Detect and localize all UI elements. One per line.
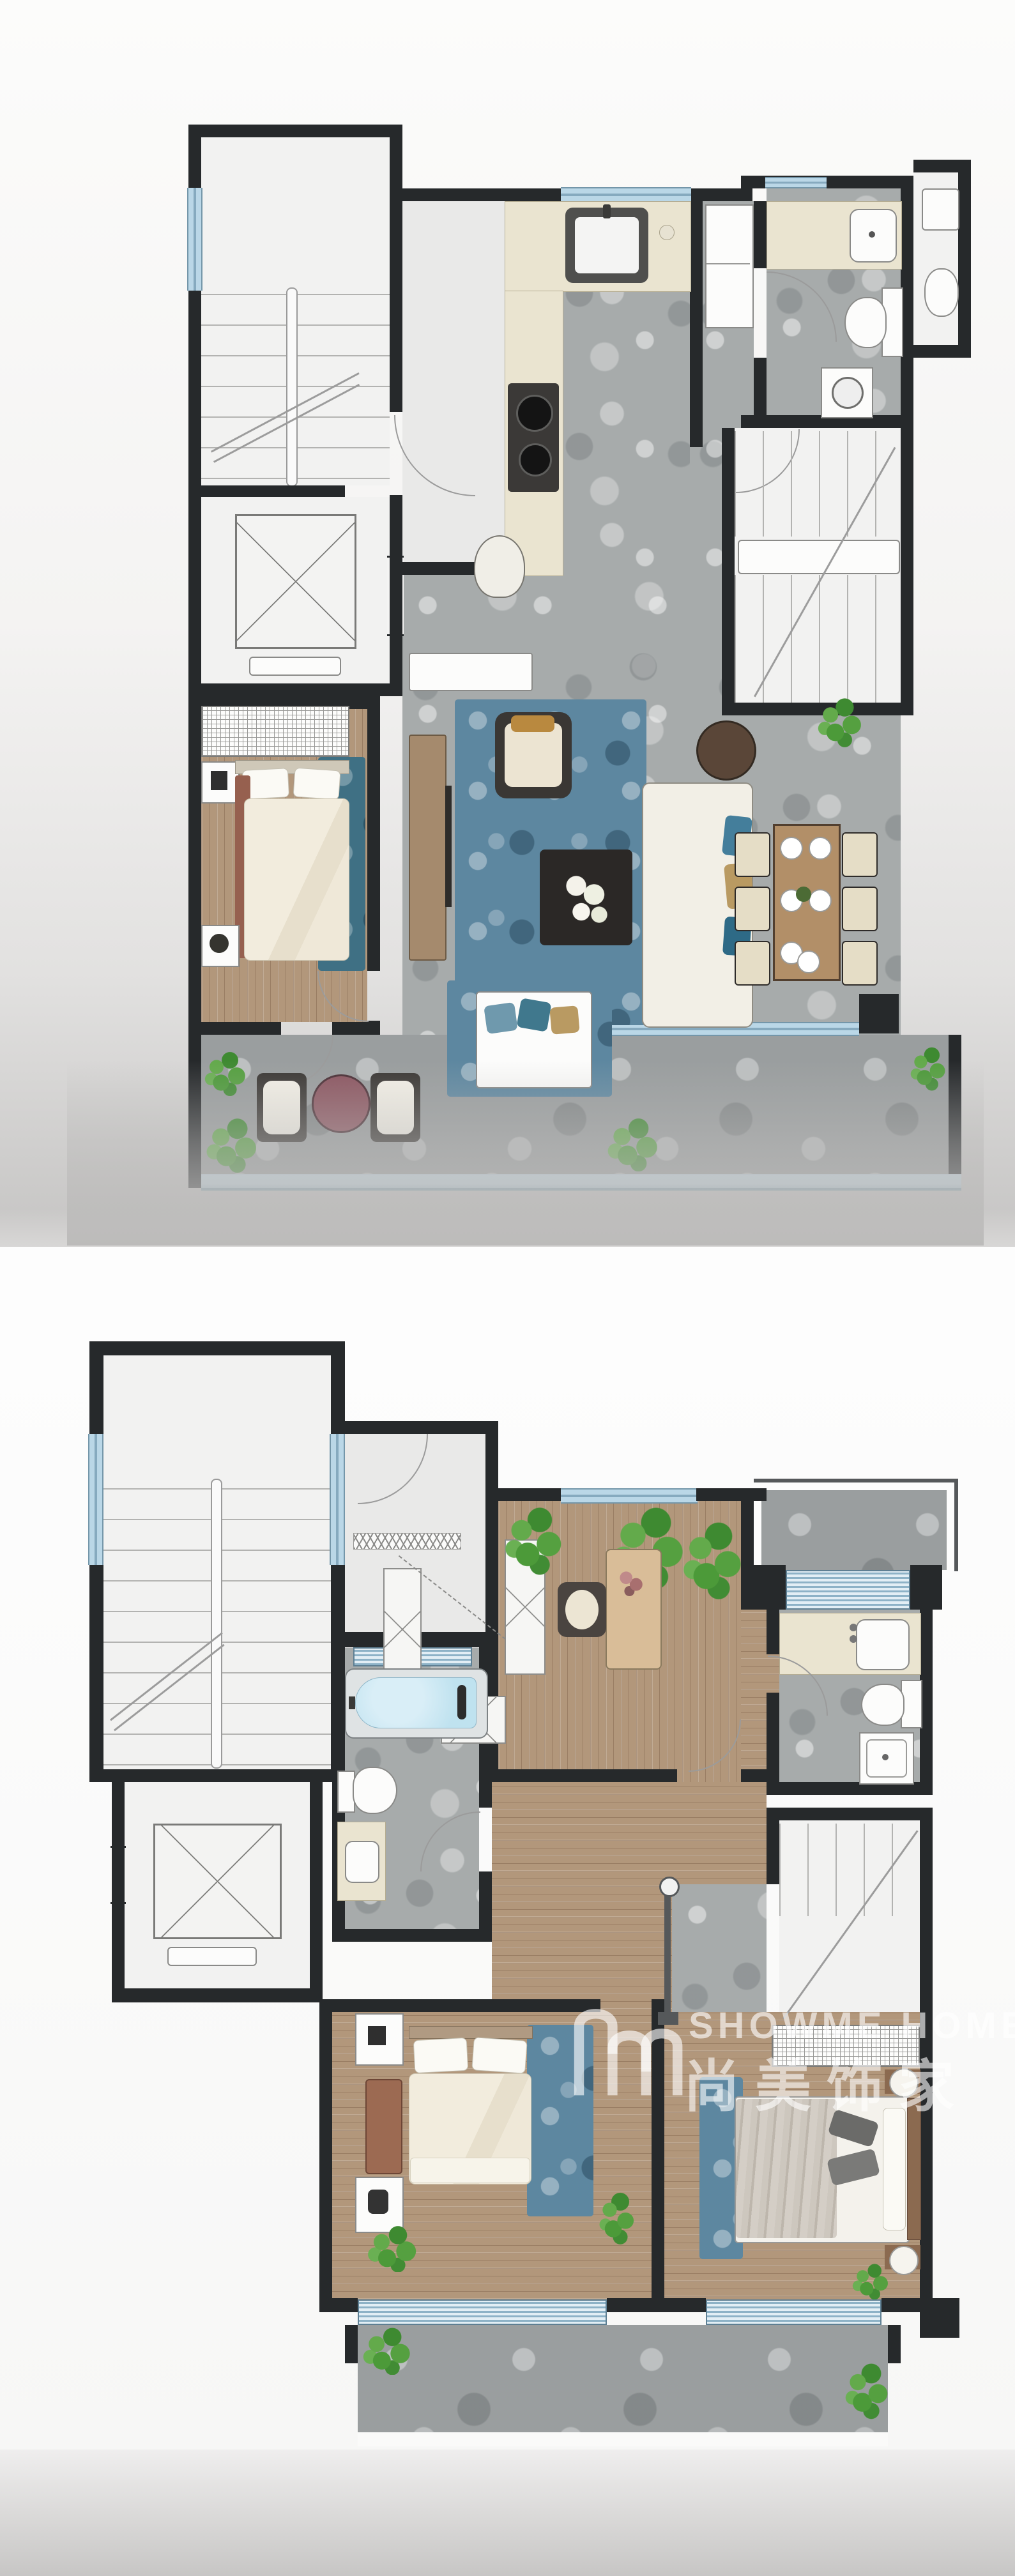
bathroom2-faucet-dot-1 — [850, 1624, 857, 1631]
wall-segment — [188, 709, 201, 1022]
wall-segment — [89, 1565, 103, 1782]
wall-segment — [390, 495, 402, 696]
coffee-table-flowers — [561, 869, 612, 926]
wall-segment — [390, 137, 402, 412]
nightstand-lamp — [211, 771, 227, 790]
wall-segment — [754, 201, 767, 268]
shower-drain — [882, 1754, 889, 1760]
rear-terrace-apron — [358, 2432, 888, 2446]
stair-center-rail — [286, 287, 298, 487]
master-bed-pillow-2 — [471, 2037, 527, 2074]
showme-home-logo-icon — [567, 1997, 685, 2105]
wall-segment — [345, 2325, 358, 2363]
plate-6 — [797, 950, 820, 973]
wall-segment — [767, 1610, 779, 1654]
wall-segment — [741, 1769, 767, 1782]
master-desk-chair — [368, 2190, 388, 2214]
dining-chair-l3 — [735, 941, 770, 986]
round-side-table — [696, 720, 756, 781]
round-nightstand-2 — [889, 2246, 919, 2275]
bed-duvet — [244, 798, 349, 961]
wall-segment — [188, 485, 345, 497]
wall-segment — [607, 2298, 706, 2312]
wall-segment — [89, 1355, 103, 1434]
master-plant-1 — [365, 2226, 420, 2272]
dining-chair-r2 — [842, 887, 878, 931]
wall-segment — [332, 1022, 380, 1035]
internal-stair-upper-flight — [735, 431, 901, 537]
wall-segment — [767, 1820, 779, 1884]
wall-segment — [310, 1782, 323, 2002]
bedside-bench — [365, 2079, 402, 2174]
study-desk-flowers — [614, 1566, 648, 1599]
master-bed-pillow-1 — [413, 2038, 469, 2073]
stairwell2-window-left — [88, 1434, 103, 1565]
elevator-shaft-2 — [153, 1824, 282, 1939]
stair2-center-rail — [211, 1479, 222, 1769]
structural-pillar-2 — [920, 2298, 959, 2338]
wall-segment — [89, 1769, 345, 1782]
wall-segment — [188, 683, 402, 696]
toilet3-bowl — [353, 1767, 397, 1814]
stair-landing-stone — [672, 1884, 767, 2023]
wall-segment — [881, 2298, 920, 2312]
wall-segment — [913, 345, 971, 358]
wall-segment — [754, 1565, 786, 1610]
kitchen-faucet — [603, 204, 611, 218]
master-basin — [345, 1841, 379, 1883]
wall-segment — [920, 1808, 933, 2025]
rear-terrace-plant-2 — [844, 2362, 889, 2420]
wall-segment — [367, 696, 380, 971]
wall-segment — [901, 176, 913, 715]
dining-chair-r1 — [842, 832, 878, 877]
rear-terrace-floor — [358, 2325, 888, 2434]
nightstand-plant — [210, 934, 229, 953]
shape — [613, 2036, 646, 2096]
wall-segment — [188, 1022, 281, 1035]
floor-plan-listing-image: SHOWME HOME 尚美饰家 — [0, 0, 1015, 2576]
shape — [579, 2014, 613, 2096]
dining-chair-l1 — [735, 832, 770, 877]
wall-segment — [331, 1565, 345, 1782]
wall-segment — [319, 2298, 358, 2312]
wall-segment — [722, 428, 735, 715]
wall-segment — [690, 201, 703, 447]
cooktop-burner-2 — [519, 443, 552, 476]
wall-segment — [767, 1808, 933, 1820]
wall-segment — [910, 1565, 942, 1610]
bathroom-window — [765, 177, 827, 188]
roof-terrace-frame-right — [954, 1479, 958, 1571]
study-plant-1 — [503, 1506, 564, 1575]
background-bottom-gradient — [0, 2450, 1015, 2576]
tv-console — [409, 735, 446, 961]
master-bedroom-louver-window — [358, 2299, 607, 2325]
study-chair-cushion — [565, 1590, 599, 1629]
desk-chair — [474, 535, 525, 598]
study-window — [561, 1488, 698, 1504]
wall-segment — [188, 137, 201, 188]
wall-segment — [888, 2325, 901, 2363]
stairwell2-window-right — [330, 1434, 345, 1565]
wall-segment — [112, 1782, 125, 2002]
bathroom-basin-drain — [869, 231, 875, 238]
bathroom2-basin — [856, 1619, 910, 1670]
wall-segment — [754, 358, 767, 422]
entry-hall-floor — [402, 201, 505, 575]
daybed-cushion-1 — [484, 1002, 518, 1034]
background-gap-band — [0, 1247, 1015, 1346]
powder-toilet — [924, 268, 959, 317]
study-plant-3 — [682, 1520, 743, 1600]
wall-segment — [89, 1341, 345, 1355]
powder-vanity — [922, 188, 959, 231]
dining-plant — [816, 697, 864, 747]
bathroom2-louver-window — [786, 1570, 910, 1610]
wall-segment — [188, 125, 402, 137]
roof-terrace-frame-top — [754, 1479, 958, 1482]
stairwell-window — [187, 188, 202, 291]
master-nightstand-lamp — [368, 2026, 386, 2045]
washing-machine-drum — [832, 377, 864, 409]
master-bed-headboard — [409, 2026, 533, 2039]
wall-segment — [345, 1421, 441, 1434]
dining-chair-r3 — [842, 941, 878, 986]
railing-newel-ball — [659, 1877, 680, 1897]
tv-panel — [445, 786, 452, 907]
bed-pillow-2 — [293, 768, 340, 800]
armchair-cushion — [505, 723, 562, 787]
watermark-latin-text: SHOWME HOME — [689, 2004, 1015, 2047]
second-bed-back-pillow — [883, 2108, 906, 2230]
wall-segment — [485, 1769, 677, 1782]
dining-chair-l2 — [735, 887, 770, 931]
shape — [579, 2014, 678, 2096]
refrigerator-divider — [706, 263, 750, 264]
bathtub-grab-bar — [457, 1685, 466, 1719]
daybed-cushion-3 — [549, 1005, 579, 1035]
bathroom2-faucet-dot-2 — [850, 1635, 857, 1643]
wall-segment — [741, 1488, 754, 1610]
kitchen-jar — [659, 225, 675, 240]
wardrobe — [201, 706, 349, 757]
wardrobe-section-hatch — [353, 1533, 461, 1550]
console-table — [409, 653, 533, 691]
bathtub-faucet — [349, 1696, 355, 1709]
internal-stair-landing — [738, 540, 900, 574]
wall-segment — [691, 188, 752, 201]
master-plant-2 — [599, 2191, 634, 2245]
plate-2 — [809, 837, 832, 860]
master-bed-sheet-fold — [410, 2158, 530, 2183]
second-bedroom-louver-window — [706, 2299, 881, 2325]
internal-stair-lower-flight — [735, 575, 901, 703]
wall-segment — [331, 1355, 345, 1434]
watermark-chinese-text: 尚美饰家 — [683, 2041, 970, 2123]
plate-4 — [809, 889, 832, 912]
armchair-pillow — [511, 715, 554, 732]
toilet2-bowl — [861, 1684, 904, 1726]
kitchen-sink-basin — [575, 217, 639, 273]
upper-plan-shadow-apron — [67, 1060, 984, 1246]
wall-segment — [319, 2012, 332, 2299]
elevator-indicator — [249, 657, 341, 676]
wall-segment — [112, 1988, 323, 2002]
structural-pillar — [859, 994, 899, 1033]
roof-terrace-floor — [761, 1490, 947, 1570]
second-bedroom-plant — [851, 2264, 890, 2299]
kitchen-window — [561, 187, 691, 202]
refrigerator — [705, 204, 754, 328]
toilet-bowl — [844, 297, 887, 348]
wall-segment — [402, 188, 562, 201]
dining-centerpiece — [796, 887, 811, 902]
rear-terrace-plant-1 — [361, 2328, 413, 2375]
elevator-shaft — [235, 514, 356, 649]
plate-1 — [780, 837, 803, 860]
cooktop-burner-1 — [516, 395, 553, 432]
staircase2-treads — [779, 1824, 920, 1916]
wall-segment — [332, 1929, 492, 1942]
elevator-indicator-2 — [167, 1947, 257, 1966]
wall-segment — [319, 1999, 600, 2012]
wall-segment — [958, 160, 971, 358]
wall-segment — [696, 1488, 767, 1501]
daybed-cushion-2 — [516, 998, 551, 1032]
